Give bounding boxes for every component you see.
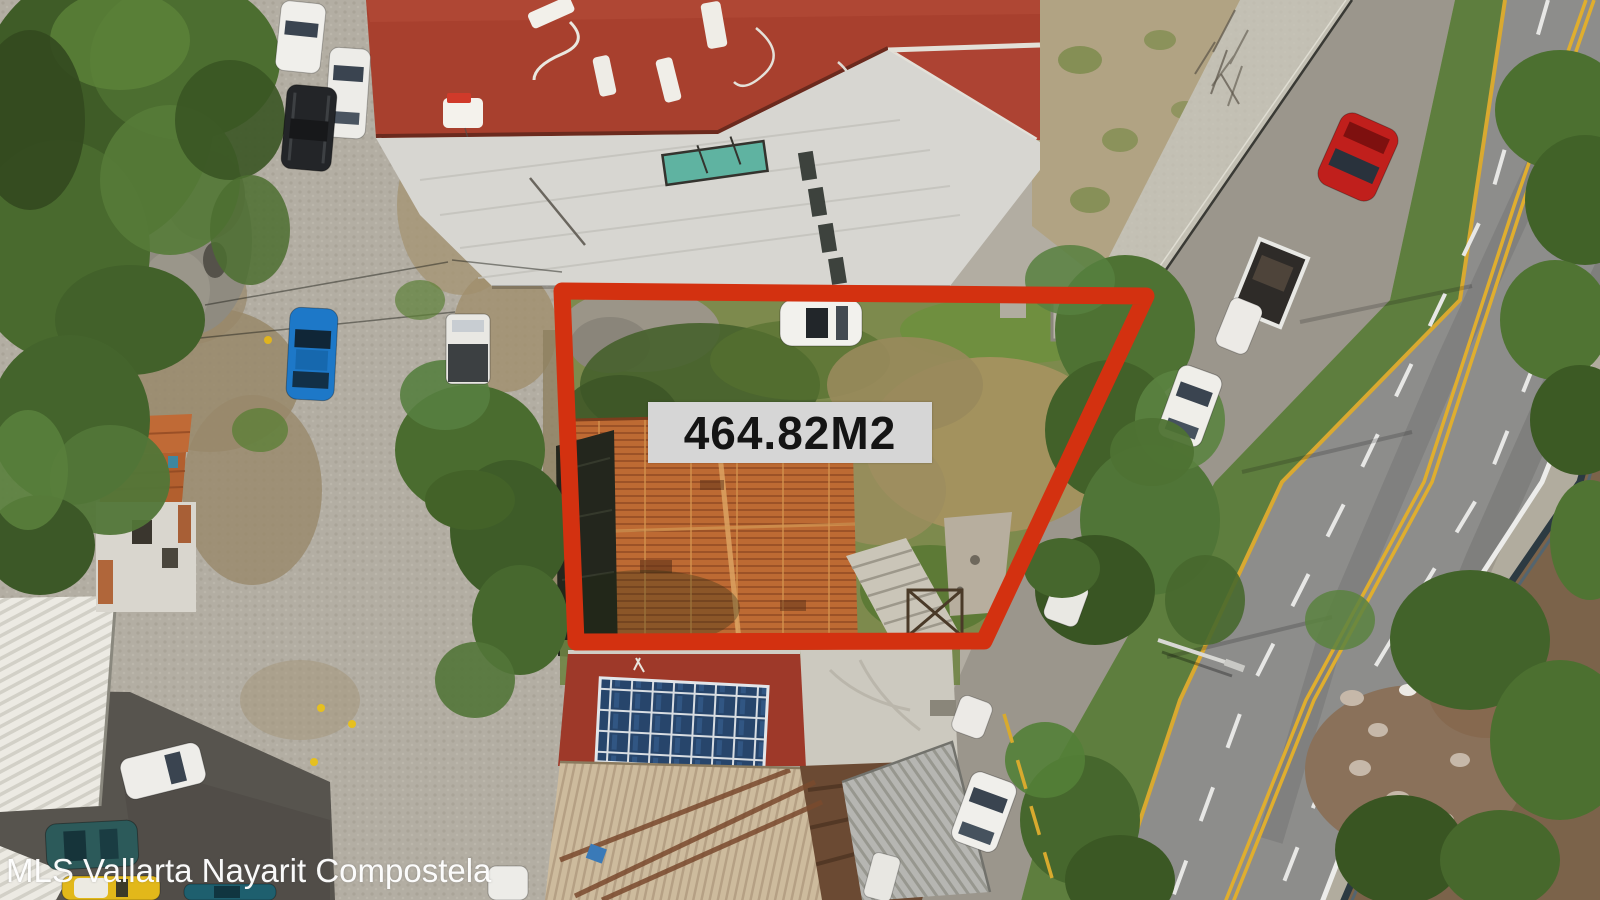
parked-car-white-1 — [275, 0, 327, 74]
area-label: 464.82M2 — [648, 402, 932, 463]
parked-suv-black — [280, 84, 337, 172]
bottom-right-car-white — [488, 866, 528, 900]
watermark-text: MLS Vallarta Nayarit Compostela — [6, 852, 491, 890]
solar-panel-array — [596, 678, 768, 771]
lot-suv-white — [780, 300, 862, 346]
main-building — [366, 0, 1040, 287]
aerial-photo: 464.82M2 MLS Vallarta Nayarit Compostela — [0, 0, 1600, 900]
parked-pickup-white — [446, 314, 490, 384]
area-label-text: 464.82M2 — [684, 406, 897, 460]
parked-car-blue — [286, 307, 339, 401]
white-corrugated-roof — [0, 596, 116, 812]
tan-corrugated-roof — [545, 762, 822, 900]
bottom-buildings — [545, 640, 990, 900]
